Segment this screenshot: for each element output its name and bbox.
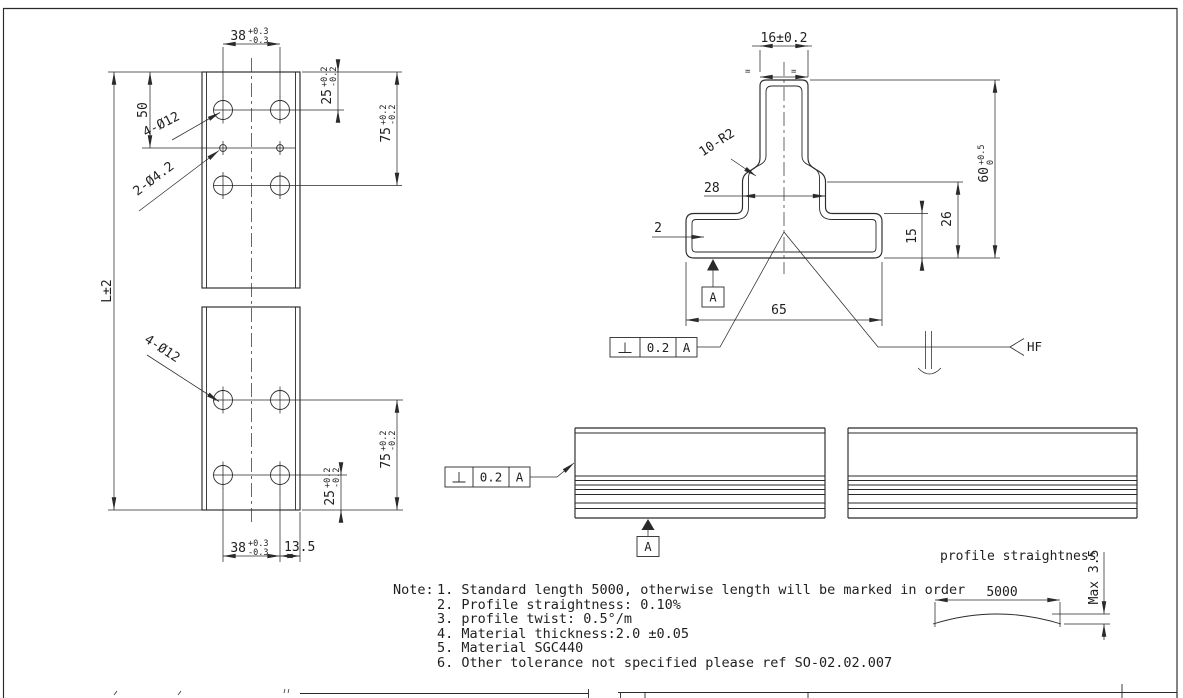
dim-shoulder-width: 28 [704, 181, 720, 196]
fcf-side: 0.2 A [445, 463, 574, 487]
tol-lower: -0.3 [248, 36, 268, 46]
svg-text:0.2: 0.2 [647, 340, 670, 355]
datum-triangle-icon [707, 259, 719, 271]
svg-text:0.2: 0.2 [480, 470, 503, 485]
dim-base-height: 15 [905, 228, 920, 244]
front-view-upper-plate [202, 72, 300, 288]
dim-wall-thickness: 2 [654, 221, 662, 236]
svg-text:-0.2: -0.2 [388, 105, 398, 125]
perpendicularity-icon [619, 343, 632, 353]
dim-shoulder-height: 26 [940, 211, 955, 227]
note-item: 3. profile twist: 0.5°/m [437, 611, 632, 627]
svg-text:4-Ø12: 4-Ø12 [141, 332, 182, 366]
svg-text:25: 25 [320, 89, 335, 105]
equal-spacing-right: = [791, 67, 797, 77]
weld-tail: HF [1010, 339, 1042, 356]
notes-label: Note: [393, 582, 434, 598]
front-view-lower-plate [202, 307, 300, 510]
title-block-fragment [114, 684, 1177, 698]
svg-text:A: A [644, 540, 652, 554]
dim-25-top: 25 +0.2 -0.2 [320, 67, 339, 105]
leader-radii: 10-R2 [697, 126, 738, 160]
note-item: 1. Standard length 5000, otherwise lengt… [437, 582, 965, 598]
dim-base-width: 65 [771, 303, 787, 318]
svg-text:75: 75 [379, 127, 394, 143]
dim-value: 38 [230, 29, 246, 44]
svg-text:75: 75 [379, 453, 394, 469]
side-views: 0.2 A A [445, 428, 1137, 557]
fcf-section: 0.2 A [610, 338, 697, 358]
svg-text:A: A [516, 470, 524, 485]
dim-75-top: 75 +0.2 -0.2 [379, 105, 398, 143]
side-view-2 [848, 428, 1137, 518]
svg-text:A: A [709, 291, 717, 305]
svg-text:60: 60 [977, 167, 992, 183]
svg-text:26: 26 [940, 211, 955, 227]
dim-length: L±2 [100, 279, 115, 302]
equal-spacing-left: = [745, 67, 751, 77]
note-item: 6. Other tolerance not specified please … [437, 655, 892, 671]
svg-text:A: A [683, 340, 691, 355]
svg-text:15: 15 [905, 228, 920, 244]
bow-arc [933, 614, 1061, 624]
datum-triangle-icon [642, 519, 655, 530]
dim-width-top: 38 +0.3 -0.3 [230, 27, 268, 46]
dim-max: Max 3.5 [1087, 550, 1102, 605]
perpendicularity-icon [453, 472, 466, 482]
svg-text:-0.2: -0.2 [329, 67, 339, 87]
leader-small-holes: 2-Ø4.2 [131, 159, 178, 199]
straightness-title: profile straightness [940, 549, 1097, 564]
dim-total-height: 60 +0.5 0 [977, 145, 996, 183]
side-view-1 [575, 428, 825, 518]
svg-text:-0.2: -0.2 [332, 468, 342, 488]
note-item: 5. Material SGC440 [437, 640, 583, 656]
front-view: 38 +0.3 -0.3 50 L±2 4-Ø12 2-Ø4.2 25 +0.2… [100, 27, 403, 562]
notes-block: Note: 1. Standard length 5000, otherwise… [393, 582, 965, 671]
dim-75-bottom: 75 +0.2 -0.2 [379, 431, 398, 469]
cad-drawing: 38 +0.3 -0.3 50 L±2 4-Ø12 2-Ø4.2 25 +0.2… [0, 0, 1183, 698]
svg-text:38: 38 [230, 541, 246, 556]
svg-text:0: 0 [986, 160, 996, 165]
svg-text:-0.2: -0.2 [388, 431, 398, 451]
dim-25-bottom: 25 +0.2 -0.2 [323, 468, 342, 506]
svg-text:50: 50 [136, 102, 151, 118]
dim-width-bottom: 38 +0.3 -0.3 [230, 539, 268, 558]
weld-process-label: HF [1027, 339, 1042, 354]
svg-text:-0.3: -0.3 [248, 548, 268, 558]
datum-a-side: A [637, 519, 659, 557]
weld-seam-icon [918, 331, 941, 374]
svg-text:25: 25 [323, 490, 338, 506]
datum-a-section: A [702, 259, 724, 307]
leader-big-holes-bottom: 4-Ø12 [141, 332, 182, 366]
svg-text:10-R2: 10-R2 [697, 126, 738, 160]
drawing-sheet: 38 +0.3 -0.3 50 L±2 4-Ø12 2-Ø4.2 25 +0.2… [0, 0, 1183, 698]
dim-edge-offset: 13.5 [284, 540, 315, 555]
dim-stem-width: 16±0.2 [761, 31, 808, 46]
dim-50: 50 [136, 102, 151, 118]
section-view: 16±0.2 = = 10-R2 28 2 65 15 26 [610, 31, 1042, 374]
dim-5000: 5000 [986, 585, 1017, 600]
svg-text:Max 3.5: Max 3.5 [1087, 550, 1102, 605]
svg-text:L±2: L±2 [100, 279, 115, 302]
svg-text:2-Ø4.2: 2-Ø4.2 [131, 159, 178, 199]
